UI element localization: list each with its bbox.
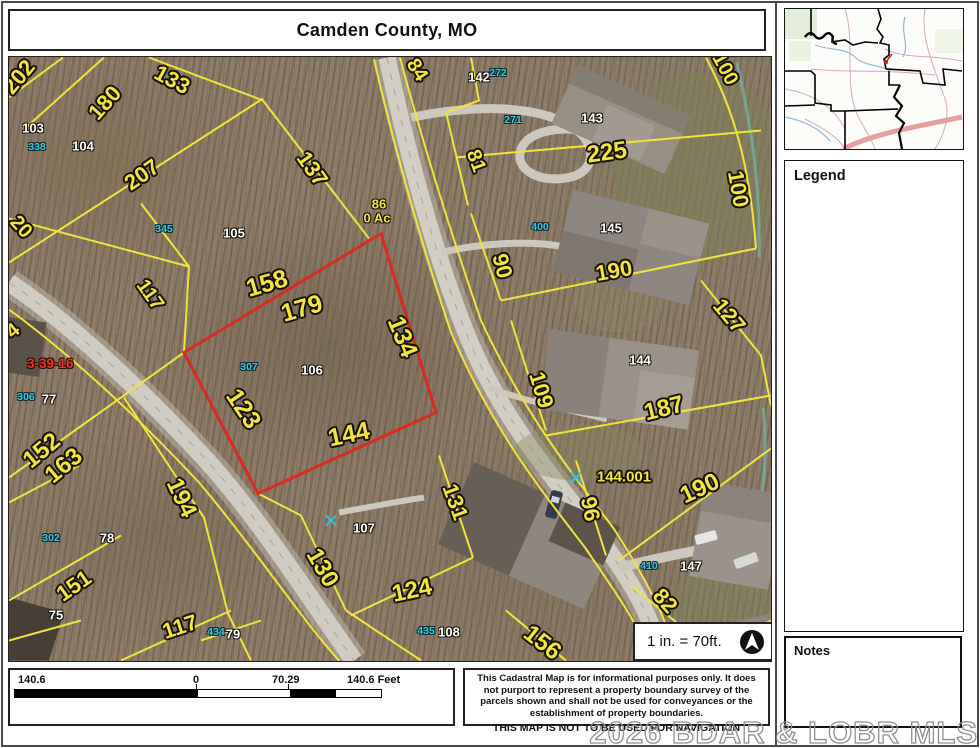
dimension-label-133: 133 bbox=[151, 62, 194, 99]
legend-panel: Legend bbox=[784, 160, 964, 632]
dimension-label-180: 180 bbox=[85, 82, 126, 124]
dimension-label-84: 84 bbox=[403, 56, 432, 85]
cadastral-map-page: Camden County, MO bbox=[0, 0, 980, 748]
scalebar-panel: 140.6 0 70.29 140.6 Feet bbox=[8, 668, 455, 726]
parcel-number-145: 145 bbox=[600, 222, 622, 235]
dimension-label-207: 207 bbox=[121, 155, 164, 194]
condo-number-271: 271 bbox=[504, 115, 522, 126]
county-locator-inset bbox=[784, 8, 964, 150]
scale-note-box: 1 in. = 70ft. bbox=[633, 622, 772, 661]
parcel-number-77: 77 bbox=[42, 393, 56, 406]
dimension-label-117: 117 bbox=[160, 611, 201, 643]
condo-number-307: 307 bbox=[240, 362, 258, 373]
north-arrow-icon bbox=[739, 629, 765, 655]
dimension-label-4: 4 bbox=[8, 320, 24, 342]
dimension-label-20: 20 bbox=[8, 212, 36, 242]
dimension-label-202: 202 bbox=[8, 56, 39, 98]
dimension-label-109: 109 bbox=[525, 369, 557, 411]
dimension-label-134: 134 bbox=[383, 313, 422, 361]
condo-number-306: 306 bbox=[17, 392, 35, 403]
map-canvas[interactable]: 3-39-16 86 0 Ac 202180133842071372011741… bbox=[8, 56, 772, 662]
parcel-number-143: 143 bbox=[581, 112, 603, 125]
condo-number-338: 338 bbox=[28, 142, 46, 153]
scalebar-label-left: 140.6 bbox=[18, 674, 46, 686]
condo-number-302: 302 bbox=[42, 533, 60, 544]
condo-number-400: 400 bbox=[531, 222, 549, 233]
dimension-label-117: 117 bbox=[133, 276, 168, 314]
dimension-label-156: 156 bbox=[519, 621, 565, 662]
parcel-number-105: 105 bbox=[223, 227, 245, 240]
dimension-label-158: 158 bbox=[244, 266, 291, 302]
condo-number-435: 435 bbox=[417, 626, 435, 637]
parcel-number-107: 107 bbox=[353, 522, 375, 535]
layout-divider bbox=[775, 2, 777, 746]
legend-title: Legend bbox=[794, 168, 963, 184]
dimension-label-124: 124 bbox=[390, 575, 434, 607]
parcel-number-104: 104 bbox=[72, 140, 94, 153]
scale-note-text: 1 in. = 70ft. bbox=[647, 633, 722, 650]
dimension-label-131: 131 bbox=[438, 481, 471, 523]
notes-title: Notes bbox=[794, 643, 960, 658]
condo-number-434: 434 bbox=[207, 627, 225, 638]
dimension-label-187: 187 bbox=[642, 393, 687, 426]
parcel-number-79: 79 bbox=[226, 628, 240, 641]
scalebar-segment bbox=[290, 690, 336, 697]
dimension-label-194: 194 bbox=[162, 475, 201, 521]
inset-label-layer bbox=[785, 9, 963, 149]
scalebar-label-right: 140.6 Feet bbox=[347, 674, 400, 686]
dimension-label-130: 130 bbox=[302, 545, 343, 592]
dimension-label-123: 123 bbox=[221, 385, 265, 434]
disclaimer-text: This Cadastral Map is for informational … bbox=[470, 673, 763, 719]
dimension-label-81: 81 bbox=[463, 147, 489, 175]
dimension-label-179: 179 bbox=[279, 291, 326, 327]
condo-number-272: 272 bbox=[489, 68, 507, 79]
dimension-label-190: 190 bbox=[594, 257, 634, 285]
parcel-number-108: 108 bbox=[438, 626, 460, 639]
dimension-label-96: 96 bbox=[577, 495, 604, 524]
map-label-layer: 3-39-16 86 0 Ac 202180133842071372011741… bbox=[9, 57, 771, 661]
section-number-label: 3-39-16 bbox=[27, 357, 74, 371]
condo-number-345: 345 bbox=[155, 224, 173, 235]
parcel-number-144: 144 bbox=[629, 354, 651, 367]
scalebar-segment bbox=[198, 690, 290, 697]
dimension-label-225: 225 bbox=[586, 138, 629, 167]
parcel-number-103: 103 bbox=[22, 122, 44, 135]
dimension-label-127: 127 bbox=[709, 295, 749, 337]
parcel-number-75: 75 bbox=[49, 609, 63, 622]
dimension-label-100: 100 bbox=[708, 56, 741, 88]
dimension-label-144: 144 bbox=[326, 418, 372, 451]
scalebar-bar bbox=[14, 689, 382, 698]
dimension-label-151: 151 bbox=[53, 566, 96, 605]
mls-watermark: 2026 BDAR & LOBR MLS bbox=[589, 717, 978, 748]
condo-number-410: 410 bbox=[640, 561, 658, 572]
parcel-number-147: 147 bbox=[680, 560, 702, 573]
scalebar-segment bbox=[15, 690, 198, 697]
scalebar-segment bbox=[336, 690, 381, 697]
scalebar-label-mid: 70.29 bbox=[272, 674, 300, 686]
parcel-number-142: 142 bbox=[468, 71, 490, 84]
dimension-label-100: 100 bbox=[724, 169, 752, 209]
page-title: Camden County, MO bbox=[297, 20, 478, 41]
map-title-bar: Camden County, MO bbox=[8, 9, 766, 51]
dimension-label-90: 90 bbox=[488, 251, 516, 280]
dimension-label-137: 137 bbox=[292, 148, 331, 191]
dimension-label-144.001: 144.001 bbox=[597, 470, 651, 485]
lot-number-label: 86 bbox=[372, 198, 386, 211]
dimension-label-190: 190 bbox=[677, 470, 723, 509]
acreage-label: 0 Ac bbox=[364, 212, 391, 225]
parcel-number-78: 78 bbox=[100, 532, 114, 545]
dimension-label-82: 82 bbox=[649, 585, 682, 618]
parcel-number-106: 106 bbox=[301, 364, 323, 377]
